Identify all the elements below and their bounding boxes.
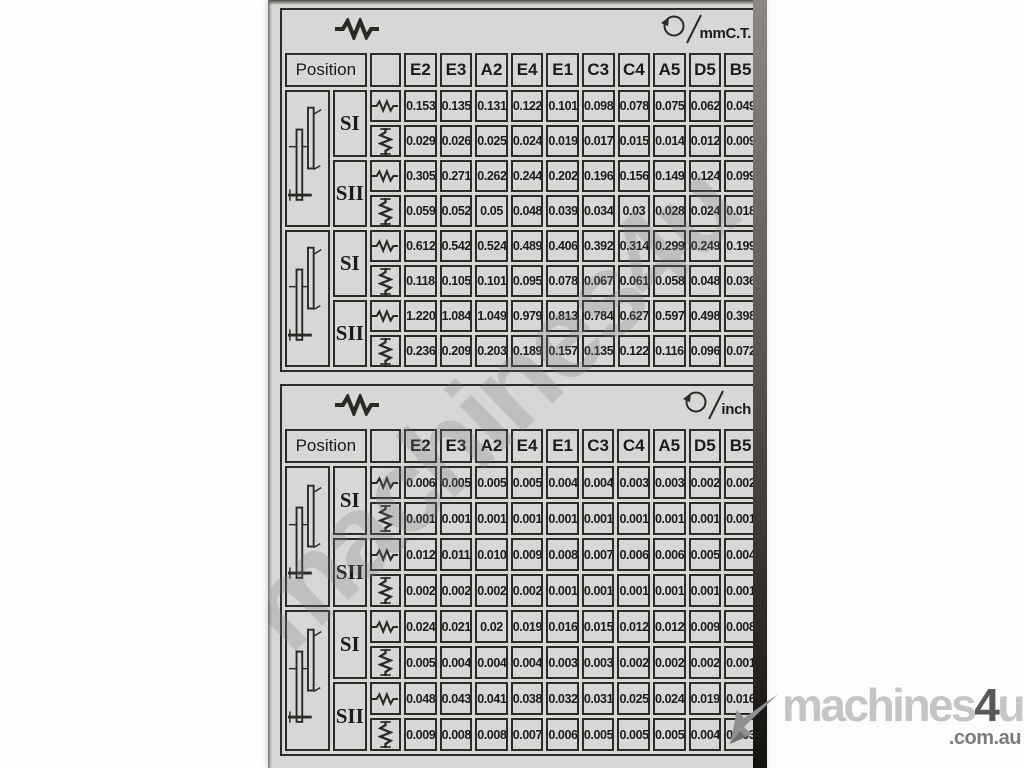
feed-value: 0.026	[440, 125, 473, 157]
feed-value: 0.003	[582, 646, 615, 679]
gear-position-diagram	[285, 90, 330, 227]
feed-value: 0.002	[617, 646, 650, 679]
plate-right-edge	[753, 0, 767, 768]
feed-value: 0.041	[475, 682, 508, 715]
feed-value: 0.043	[440, 682, 473, 715]
feed-value: 0.149	[653, 160, 686, 192]
feed-value: 0.004	[511, 646, 544, 679]
feed-table-metric: mmC.T. PositionE2E3A2E4E1C3C4A5D5B5 SI 0…	[280, 8, 762, 372]
column-header-A2: A2	[475, 429, 508, 463]
speed-range-label: SII	[333, 300, 367, 367]
feed-value: 0.038	[511, 682, 544, 715]
feed-value: 0.001	[475, 502, 508, 535]
column-header-C4: C4	[618, 53, 651, 87]
feed-value: 0.002	[689, 466, 722, 499]
feed-value: 0.979	[511, 300, 544, 332]
feed-value: 0.124	[689, 160, 722, 192]
column-header-A5: A5	[653, 53, 686, 87]
feed-value: 0.004	[440, 646, 473, 679]
feed-value: 0.122	[618, 335, 651, 367]
feed-value: 0.019	[689, 682, 722, 715]
feed-value: 0.096	[689, 335, 722, 367]
feed-value: 0.009	[511, 538, 544, 571]
feed-value: 0.001	[582, 574, 615, 607]
feed-value: 0.005	[617, 718, 650, 751]
position-header: Position	[285, 429, 367, 463]
feed-value: 0.005	[404, 646, 437, 679]
longitudinal-feed-icon	[370, 466, 401, 499]
feed-value: 0.008	[546, 538, 579, 571]
feed-value: 0.012	[404, 538, 437, 571]
feed-chart-plate: mmC.T. PositionE2E3A2E4E1C3C4A5D5B5 SI 0…	[268, 0, 765, 768]
feed-value: 0.012	[617, 610, 650, 643]
gear-position-diagram	[285, 466, 330, 607]
feed-value: 1.084	[440, 300, 473, 332]
gear-position-diagram	[285, 610, 330, 751]
logo-part-u: u	[997, 679, 1023, 731]
feed-value: 0.028	[653, 195, 686, 227]
feed-value: 0.153	[404, 90, 437, 122]
feed-value: 0.078	[618, 90, 651, 122]
feed-value: 0.116	[653, 335, 686, 367]
cross-feed-icon	[370, 265, 401, 297]
feed-value: 0.244	[511, 160, 544, 192]
cross-feed-icon	[370, 502, 401, 535]
feed-value: 0.001	[617, 574, 650, 607]
column-header-C3: C3	[582, 429, 615, 463]
feed-value: 0.271	[440, 160, 473, 192]
feed-value: 0.004	[546, 466, 579, 499]
speed-range-label: SI	[333, 610, 367, 679]
feed-value: 0.006	[617, 538, 650, 571]
feed-value: 0.008	[440, 718, 473, 751]
feed-value: 0.016	[546, 610, 579, 643]
feed-value: 0.032	[546, 682, 579, 715]
per-revolution-unit: mmC.T.	[659, 13, 751, 50]
feed-value: 0.052	[440, 195, 473, 227]
feed-value: 0.001	[689, 502, 722, 535]
thread-feed-icon	[331, 18, 383, 45]
feed-value: 0.0154	[582, 610, 615, 643]
feed-value: 0.157	[546, 335, 579, 367]
feed-value: 0.784	[582, 300, 615, 332]
column-header-E1: E1	[546, 429, 579, 463]
feed-value: 0.024	[653, 682, 686, 715]
feed-value: 0.048	[689, 265, 722, 297]
feed-value: 0.003	[617, 466, 650, 499]
logo-part-machines: machines	[782, 679, 974, 731]
thread-feed-icon	[331, 394, 383, 421]
feed-value: 0.001	[582, 502, 615, 535]
plate-left-edge	[268, 0, 272, 768]
feed-value: 0.002	[653, 646, 686, 679]
column-header-E2: E2	[404, 429, 437, 463]
feed-value: 0.048	[404, 682, 437, 715]
longitudinal-feed-icon	[370, 230, 401, 262]
feed-value: 0.236	[404, 335, 437, 367]
feed-value: 0.203	[475, 335, 508, 367]
unit-band: inch	[285, 389, 757, 426]
longitudinal-feed-icon	[370, 610, 401, 643]
feed-value: 0.001	[546, 502, 579, 535]
cross-feed-icon	[370, 195, 401, 227]
feed-table-inch: inch PositionE2E3A2E4E1C3C4A5D5B5 SI 0.0…	[280, 384, 762, 756]
feed-value: 0.122	[511, 90, 544, 122]
feed-value: 0.009	[689, 610, 722, 643]
feed-value: 0.005	[653, 718, 686, 751]
position-header: Position	[285, 53, 367, 87]
feed-value: 0.062	[689, 90, 722, 122]
logo-part-4: 4	[974, 679, 997, 731]
feed-value: 0.299	[653, 230, 686, 262]
feed-value: 0.001	[689, 574, 722, 607]
feed-value: 0.004	[689, 718, 722, 751]
feed-symbol-header	[370, 53, 401, 87]
feed-value: 0.078	[546, 265, 579, 297]
feed-value: 0.392	[582, 230, 615, 262]
feed-value: 0.012	[653, 610, 686, 643]
feed-value: 0.597	[653, 300, 686, 332]
speed-range-label: SII	[333, 160, 367, 227]
feed-value: 0.010	[475, 538, 508, 571]
feed-value: 0.131	[475, 90, 508, 122]
feed-value: 0.002	[404, 574, 437, 607]
longitudinal-feed-icon	[370, 90, 401, 122]
feed-value: 0.135	[582, 335, 615, 367]
speed-range-label: SII	[333, 682, 367, 751]
feed-value: 0.209	[440, 335, 473, 367]
feed-value: 0.813	[546, 300, 579, 332]
column-header-A2: A2	[475, 53, 508, 87]
column-header-A5: A5	[653, 429, 686, 463]
cross-feed-icon	[370, 574, 401, 607]
feed-value: 0.024	[404, 610, 437, 643]
feed-value: 0.019	[511, 610, 544, 643]
feed-value: 0.005	[511, 466, 544, 499]
feed-value: 0.048	[511, 195, 544, 227]
feed-value: 0.059	[404, 195, 437, 227]
speed-range-label: SI	[333, 230, 367, 297]
column-header-E4: E4	[511, 53, 544, 87]
feed-value: 0.017	[582, 125, 615, 157]
column-header-C3: C3	[582, 53, 615, 87]
longitudinal-feed-icon	[370, 160, 401, 192]
logo-wordmark: machines4u	[782, 684, 1023, 728]
feed-value: 0.005	[689, 538, 722, 571]
feed-value: 0.007	[582, 538, 615, 571]
feed-value: 1.049	[475, 300, 508, 332]
feed-value: 0.05	[475, 195, 508, 227]
feed-value: 1.220	[404, 300, 437, 332]
feed-value: 0.262	[475, 160, 508, 192]
feed-value: 0.101	[546, 90, 579, 122]
feed-value: 0.006	[653, 538, 686, 571]
feed-value: 0.003	[653, 466, 686, 499]
feed-value: 0.118	[404, 265, 437, 297]
feed-value: 0.627	[618, 300, 651, 332]
feed-value: 0.034	[582, 195, 615, 227]
longitudinal-feed-icon	[370, 682, 401, 715]
feed-value: 0.03	[618, 195, 651, 227]
feed-value: 0.058	[653, 265, 686, 297]
feed-value: 0.005	[582, 718, 615, 751]
feed-value: 0.007	[511, 718, 544, 751]
feed-value: 0.024	[511, 125, 544, 157]
feed-value: 0.021	[440, 610, 473, 643]
feed-value: 0.031	[582, 682, 615, 715]
feed-value: 0.005	[475, 466, 508, 499]
speed-range-label: SI	[333, 466, 367, 535]
feed-value: 0.004	[475, 646, 508, 679]
feed-value: 0.025	[475, 125, 508, 157]
feed-value: 0.524	[475, 230, 508, 262]
unit-band: mmC.T.	[285, 13, 757, 50]
feed-value: 0.002	[511, 574, 544, 607]
feed-value: 0.006	[404, 466, 437, 499]
feed-value: 0.156	[618, 160, 651, 192]
feed-value: 0.02	[475, 610, 508, 643]
unit-label: inch	[721, 401, 751, 418]
feed-value: 0.006	[546, 718, 579, 751]
photo-stage: mmC.T. PositionE2E3A2E4E1C3C4A5D5B5 SI 0…	[0, 0, 1024, 768]
feed-value: 0.009	[404, 718, 437, 751]
feed-value: 0.498	[689, 300, 722, 332]
logo-domain: .com.au	[782, 729, 1023, 748]
gear-position-diagram	[285, 230, 330, 367]
feed-value: 0.001	[511, 502, 544, 535]
unit-label: mmC.T.	[699, 25, 751, 42]
feed-value: 0.098	[582, 90, 615, 122]
feed-value: 0.015	[618, 125, 651, 157]
feed-symbol-header	[370, 429, 401, 463]
feed-value: 0.249	[689, 230, 722, 262]
feed-value: 0.001	[546, 574, 579, 607]
plate-top-edge	[268, 0, 765, 5]
feed-value: 0.002	[689, 646, 722, 679]
speed-range-label: SII	[333, 538, 367, 607]
feed-value: 0.025	[617, 682, 650, 715]
feed-value: 0.612	[404, 230, 437, 262]
speed-range-label: SI	[333, 90, 367, 157]
per-revolution-unit: inch	[681, 389, 751, 426]
feed-value: 0.196	[582, 160, 615, 192]
column-header-E1: E1	[546, 53, 579, 87]
feed-value: 0.542	[440, 230, 473, 262]
feed-value: 0.001	[653, 574, 686, 607]
column-header-E2: E2	[404, 53, 437, 87]
feed-value: 0.101	[475, 265, 508, 297]
feed-value: 0.314	[618, 230, 651, 262]
feed-value: 0.067	[582, 265, 615, 297]
feed-value: 0.004	[582, 466, 615, 499]
feed-value: 0.001	[653, 502, 686, 535]
cross-feed-icon	[370, 646, 401, 679]
feed-value: 0.001	[404, 502, 437, 535]
feed-value: 0.002	[440, 574, 473, 607]
feed-value: 0.406	[546, 230, 579, 262]
feed-value: 0.014	[653, 125, 686, 157]
logo-arrow-icon	[726, 690, 780, 748]
feed-value: 0.005	[440, 466, 473, 499]
feed-value: 0.489	[511, 230, 544, 262]
feed-value: 0.095	[511, 265, 544, 297]
feed-value: 0.003	[546, 646, 579, 679]
feed-value: 0.024	[689, 195, 722, 227]
machines4u-logo: machines4u .com.au	[726, 684, 1023, 748]
feed-value: 0.039	[546, 195, 579, 227]
column-header-D5: D5	[689, 53, 722, 87]
cross-feed-icon	[370, 335, 401, 367]
longitudinal-feed-icon	[370, 538, 401, 571]
column-header-E3: E3	[440, 53, 473, 87]
feed-value: 0.001	[440, 502, 473, 535]
feed-value: 0.001	[617, 502, 650, 535]
feed-value: 0.012	[689, 125, 722, 157]
feed-value: 0.011	[440, 538, 473, 571]
feed-value: 0.0296	[404, 125, 437, 157]
logo-text: machines4u .com.au	[782, 684, 1023, 748]
column-header-E3: E3	[440, 429, 473, 463]
feed-value: 0.008	[475, 718, 508, 751]
feed-value: 0.061	[618, 265, 651, 297]
feed-value: 0.202	[546, 160, 579, 192]
feed-value: 0.075	[653, 90, 686, 122]
column-header-E4: E4	[511, 429, 544, 463]
feed-value: 0.002	[475, 574, 508, 607]
column-header-D5: D5	[689, 429, 722, 463]
feed-value: 0.189	[511, 335, 544, 367]
column-header-C4: C4	[617, 429, 650, 463]
cross-feed-icon	[370, 125, 401, 157]
feed-value: 0.305	[404, 160, 437, 192]
cross-feed-icon	[370, 718, 401, 751]
feed-value: 0.019	[546, 125, 579, 157]
longitudinal-feed-icon	[370, 300, 401, 332]
feed-value: 0.135	[440, 90, 473, 122]
feed-value: 0.105	[440, 265, 473, 297]
